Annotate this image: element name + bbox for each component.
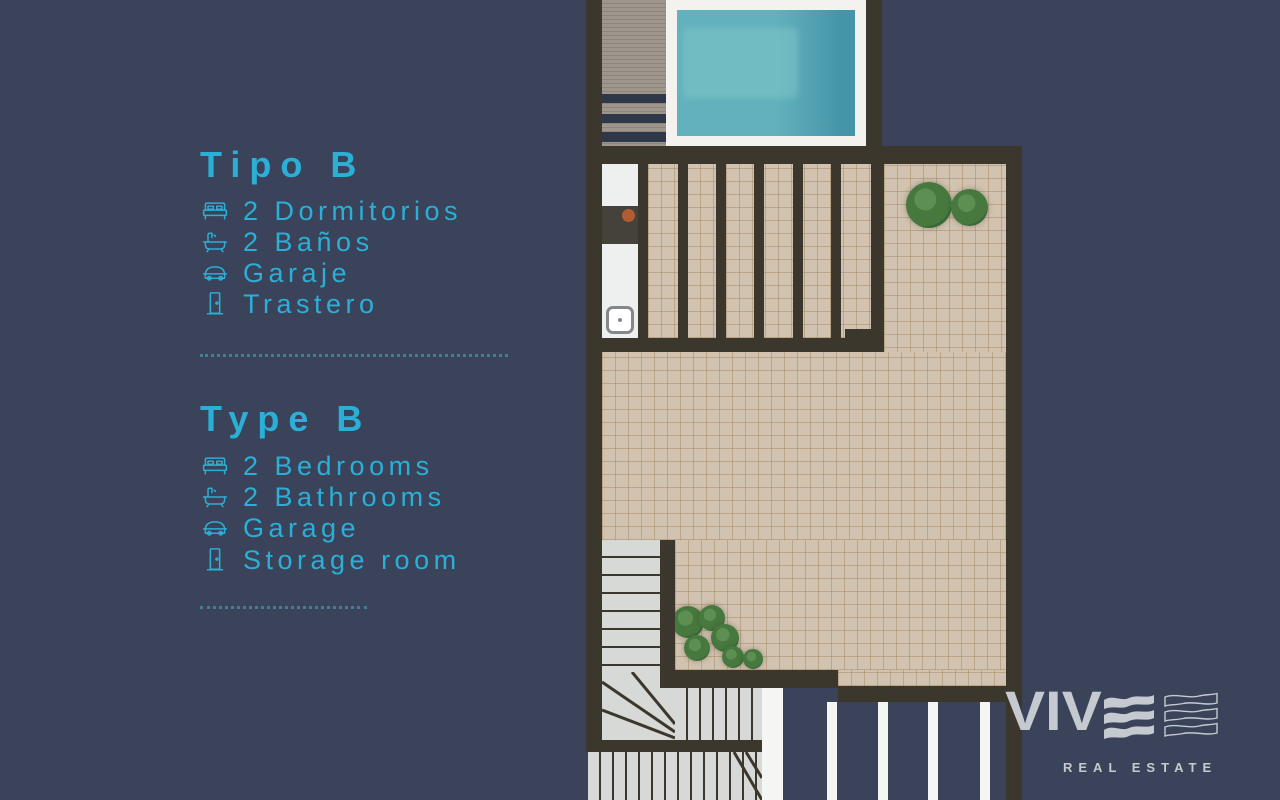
feature-row: Storage room [200,545,461,575]
bed-icon [200,452,230,480]
deck-step [602,114,666,123]
sink-drain [618,318,622,322]
wall-divider [871,164,884,342]
pergola-beam [827,702,837,800]
wall-stair [660,540,675,688]
car-icon [200,259,230,287]
deck-step [602,94,666,103]
feature-row: 2 Dormitorios [200,196,462,226]
pergola-slat [678,164,688,338]
terrace-main [838,670,1006,686]
feature-label: Trastero [243,289,379,320]
wall-terrace-south-east [838,686,1022,702]
feature-label: 2 Dormitorios [243,196,462,227]
bath-icon [200,483,230,511]
lower-terrace-edge [762,688,783,800]
vive-logo: VIV REAL ESTATE [1005,686,1277,790]
wood-deck [602,0,666,146]
door-icon [200,546,230,574]
wall-pool-east [866,0,882,146]
pergola-beam [980,702,990,800]
feature-row: Trastero [200,289,379,319]
pergola-slat [793,164,803,338]
shrub [743,649,763,669]
logo-tagline: REAL ESTATE [1063,760,1217,775]
panel-title-es: Tipo B [200,144,365,186]
bath-icon [200,228,230,256]
lower-pergola [783,688,1006,800]
pergola-slat [754,164,764,338]
dotted-divider [200,606,367,609]
pergola-beam [878,702,888,800]
feature-label: Storage room [243,545,461,576]
logo-wordmark: VIV [1005,686,1102,738]
feature-label: 2 Bedrooms [243,451,434,482]
wall-pool-south [586,146,1022,164]
wall-west [586,0,602,752]
feature-row: 2 Bedrooms [200,451,434,481]
pergola-slat [831,164,841,338]
pool-surround [666,0,866,146]
door-icon [200,290,230,318]
wall-stair-south [586,740,762,752]
shrub [684,635,710,661]
logo-wave-e-filled [1102,692,1156,740]
outdoor-kitchen [602,164,638,338]
tree [906,182,952,228]
panel-title-en: Type B [200,398,371,440]
shrub [722,646,744,668]
swimming-pool [677,10,855,136]
pool-highlight [683,28,798,98]
kitchen-sink [606,306,634,334]
feature-row: 2 Baños [200,227,374,257]
feature-label: 2 Bathrooms [243,482,446,513]
logo-wave-e-outline [1163,692,1219,740]
car-icon [200,514,230,542]
feature-label: Garaje [243,258,351,289]
bed-icon [200,197,230,225]
stove-burner [622,209,635,222]
feature-row: Garaje [200,258,351,288]
feature-row: 2 Bathrooms [200,482,446,512]
stair-flight-upper [602,540,660,672]
page: Tipo B 2 Dormitorios 2 Baños Garaje Tras… [0,0,1280,800]
deck-step [602,132,666,142]
wall-terrace-south-west [660,670,838,688]
stair-flight-middle [675,688,762,740]
feature-label: 2 Baños [243,227,374,258]
feature-label: Garage [243,513,360,544]
pergola-beam [928,702,938,800]
wall-pergola-south [586,338,884,352]
pergola-slat [716,164,726,338]
tree [951,189,988,226]
stair-flight-lower [588,752,762,800]
pergola-slat [638,164,648,338]
terrace-main [602,352,1006,540]
feature-row: Garage [200,513,360,543]
dotted-divider [200,354,508,357]
